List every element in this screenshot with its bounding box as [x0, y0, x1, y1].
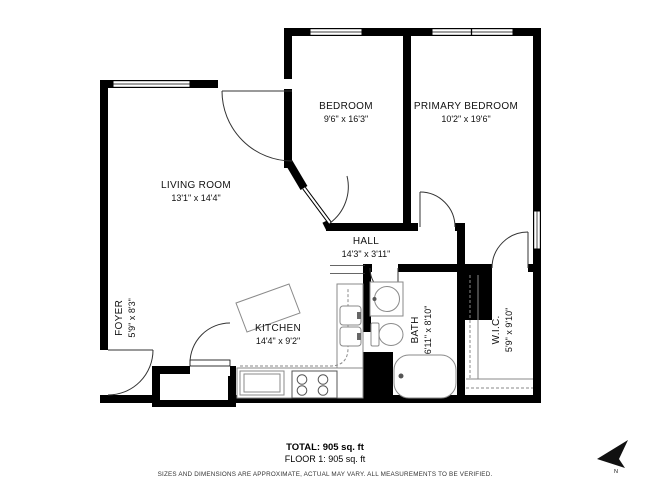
foyer-closet: [152, 366, 236, 407]
room-label-bedroom: BEDROOM 9'6" x 16'3": [286, 101, 406, 125]
room-name: FOYER: [114, 258, 127, 378]
hall-opening: [330, 266, 365, 274]
room-label-primary-bedroom: PRIMARY BEDROOM 10'2" x 19'6": [396, 101, 536, 125]
refrigerator: [240, 371, 284, 395]
room-dimensions: 5'9" x 9'10": [504, 270, 515, 390]
room-dimensions: 14'4" x 9'2": [218, 336, 338, 347]
kitchen-counter-right: [337, 284, 363, 368]
wic-door: [492, 232, 528, 273]
toilet: [371, 323, 403, 346]
room-name: HALL: [306, 236, 426, 249]
room-name: LIVING ROOM: [136, 180, 256, 193]
room-dimensions: 14'3" x 3'11": [306, 249, 426, 260]
room-name: KITCHEN: [218, 323, 338, 336]
disclaimer-text: SIZES AND DIMENSIONS ARE APPROXIMATE, AC…: [0, 471, 650, 478]
room-dimensions: 13'1" x 14'4": [136, 193, 256, 204]
room-dimensions: 6'11" x 8'10": [423, 270, 434, 390]
living-room-window: [113, 81, 190, 88]
room-label-bath: BATH 6'11" x 8'10": [410, 270, 434, 390]
room-label-hall: HALL 14'3" x 3'11": [306, 236, 426, 260]
living-room-door: [218, 79, 292, 161]
room-dimensions: 5'9" x 8'3": [127, 258, 138, 378]
room-name: PRIMARY BEDROOM: [396, 101, 536, 114]
primary-side-window: [534, 211, 541, 249]
room-dimensions: 10'2" x 19'6": [396, 114, 536, 125]
room-name: W.I.C.: [491, 270, 504, 390]
room-label-kitchen: KITCHEN 14'4" x 9'2": [218, 323, 338, 347]
floor-area-label: FLOOR 1: 905 sq. ft: [0, 454, 650, 464]
room-name: BATH: [410, 270, 423, 390]
bedroom-door: [304, 176, 348, 223]
room-dimensions: 9'6" x 16'3": [286, 114, 406, 125]
bedroom-window: [310, 29, 362, 36]
primary-bedroom-window: [432, 29, 513, 36]
bath-vanity: [370, 282, 403, 316]
area-summary: TOTAL: 905 sq. ft FLOOR 1: 905 sq. ft: [0, 442, 650, 464]
stove: [292, 371, 337, 398]
primary-bedroom-door: [418, 192, 455, 232]
room-label-living-room: LIVING ROOM 13'1" x 14'4": [136, 180, 256, 204]
room-name: BEDROOM: [286, 101, 406, 114]
room-label-wic: W.I.C. 5'9" x 9'10": [491, 270, 515, 390]
total-area-label: TOTAL: 905 sq. ft: [0, 442, 650, 453]
room-label-foyer: FOYER 5'9" x 8'3": [114, 258, 138, 378]
floor-plan: N BEDROOM 9'6" x 16'3" PRIMARY BEDROOM 1…: [0, 0, 650, 488]
